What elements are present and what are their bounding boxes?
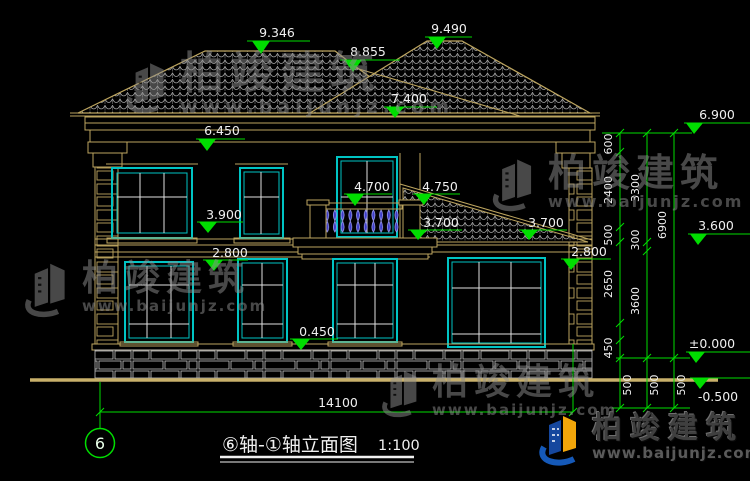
elevation-svg: 9.346 8.855 9.490 7.400 6.450 3.900	[0, 0, 750, 481]
level-4700-label: 4.700	[354, 179, 390, 194]
axis-bubble-number: 6	[95, 434, 105, 453]
level-4750-label: 4.750	[422, 179, 458, 194]
total-width-label: 14100	[318, 395, 358, 410]
level-triangle	[688, 352, 705, 363]
chain-a-500b: 500	[621, 375, 634, 396]
level-0450-label: 0.450	[299, 324, 335, 339]
level-6900-label: 6.900	[699, 107, 735, 122]
chain-b-3300: 3300	[629, 174, 642, 202]
ground-window-4	[448, 258, 545, 347]
level-triangle	[198, 139, 216, 151]
upper-window-1	[106, 164, 198, 243]
left-eave-cap	[88, 142, 127, 153]
level-3700r-label: 3.700	[528, 215, 564, 230]
balcony-slab	[293, 238, 437, 259]
stone-base	[92, 344, 594, 378]
level-9490-label: 9.490	[431, 21, 467, 36]
marker-6450: 6.450	[196, 123, 245, 151]
level-8855-label: 8.855	[350, 44, 386, 59]
eave-cornice	[70, 113, 600, 168]
chain-c-500b: 500	[675, 375, 688, 396]
level-triangle	[692, 378, 709, 389]
chain-a-2650: 2650	[602, 270, 615, 298]
level-3700l-label: 3.700	[423, 215, 459, 230]
level-0000-label: ±0.000	[689, 336, 735, 351]
chain-c-6900: 6900	[656, 211, 669, 239]
ground-window-1	[120, 262, 198, 346]
chain-b-3600: 3600	[629, 287, 642, 315]
level-7400-label: 7.400	[391, 91, 427, 106]
chain-b-labels: 3300 300 3600 500	[629, 174, 661, 396]
right-dimension-chains: 600 2400 500 2650 450 500 3300 300 3600 …	[602, 107, 750, 412]
balusters	[326, 209, 402, 235]
chain-a-2400: 2400	[602, 176, 615, 204]
chain-a-450: 450	[602, 338, 615, 359]
level-2800l-label: 2.800	[212, 245, 248, 260]
level-triangle	[346, 194, 364, 206]
right-eave-cap	[556, 142, 595, 153]
level-minus0500-label: -0.500	[698, 389, 738, 404]
chain-a-500: 500	[602, 225, 615, 246]
chain-b-300: 300	[629, 230, 642, 251]
ground-window-2	[233, 259, 292, 346]
chain-a-600: 600	[602, 134, 615, 155]
chain-b-500b: 500	[648, 375, 661, 396]
marker-3900: 3.900	[197, 207, 243, 233]
level-triangle	[205, 260, 223, 271]
level-triangle	[690, 234, 707, 245]
marker-2800-left: 2.800	[203, 245, 248, 271]
drawing-title: ⑥轴-①轴立面图	[222, 434, 358, 456]
chain-c-labels: 6900 500	[656, 211, 688, 396]
right-level-markers: 6.900 3.600 ±0.000 -0.500	[684, 107, 750, 404]
level-9346-label: 9.346	[259, 25, 295, 40]
cad-elevation-drawing: 9.346 8.855 9.490 7.400 6.450 3.900	[0, 0, 750, 481]
marker-4700: 4.700	[344, 179, 392, 206]
level-triangle	[686, 123, 703, 134]
title-block: ⑥轴-①轴立面图 1:100	[220, 434, 420, 462]
level-3900-label: 3.900	[206, 207, 242, 222]
ground-window-3	[328, 259, 402, 346]
chain-a-labels: 600 2400 500 2650 450 500	[602, 134, 634, 396]
upper-window-2	[234, 164, 290, 243]
drawing-scale: 1:100	[378, 438, 420, 454]
left-quoin-pilaster	[95, 167, 118, 344]
level-triangle	[199, 222, 217, 233]
marker-9346: 9.346	[247, 25, 310, 54]
level-6450-label: 6.450	[204, 123, 240, 138]
level-3600-label: 3.600	[698, 218, 734, 233]
